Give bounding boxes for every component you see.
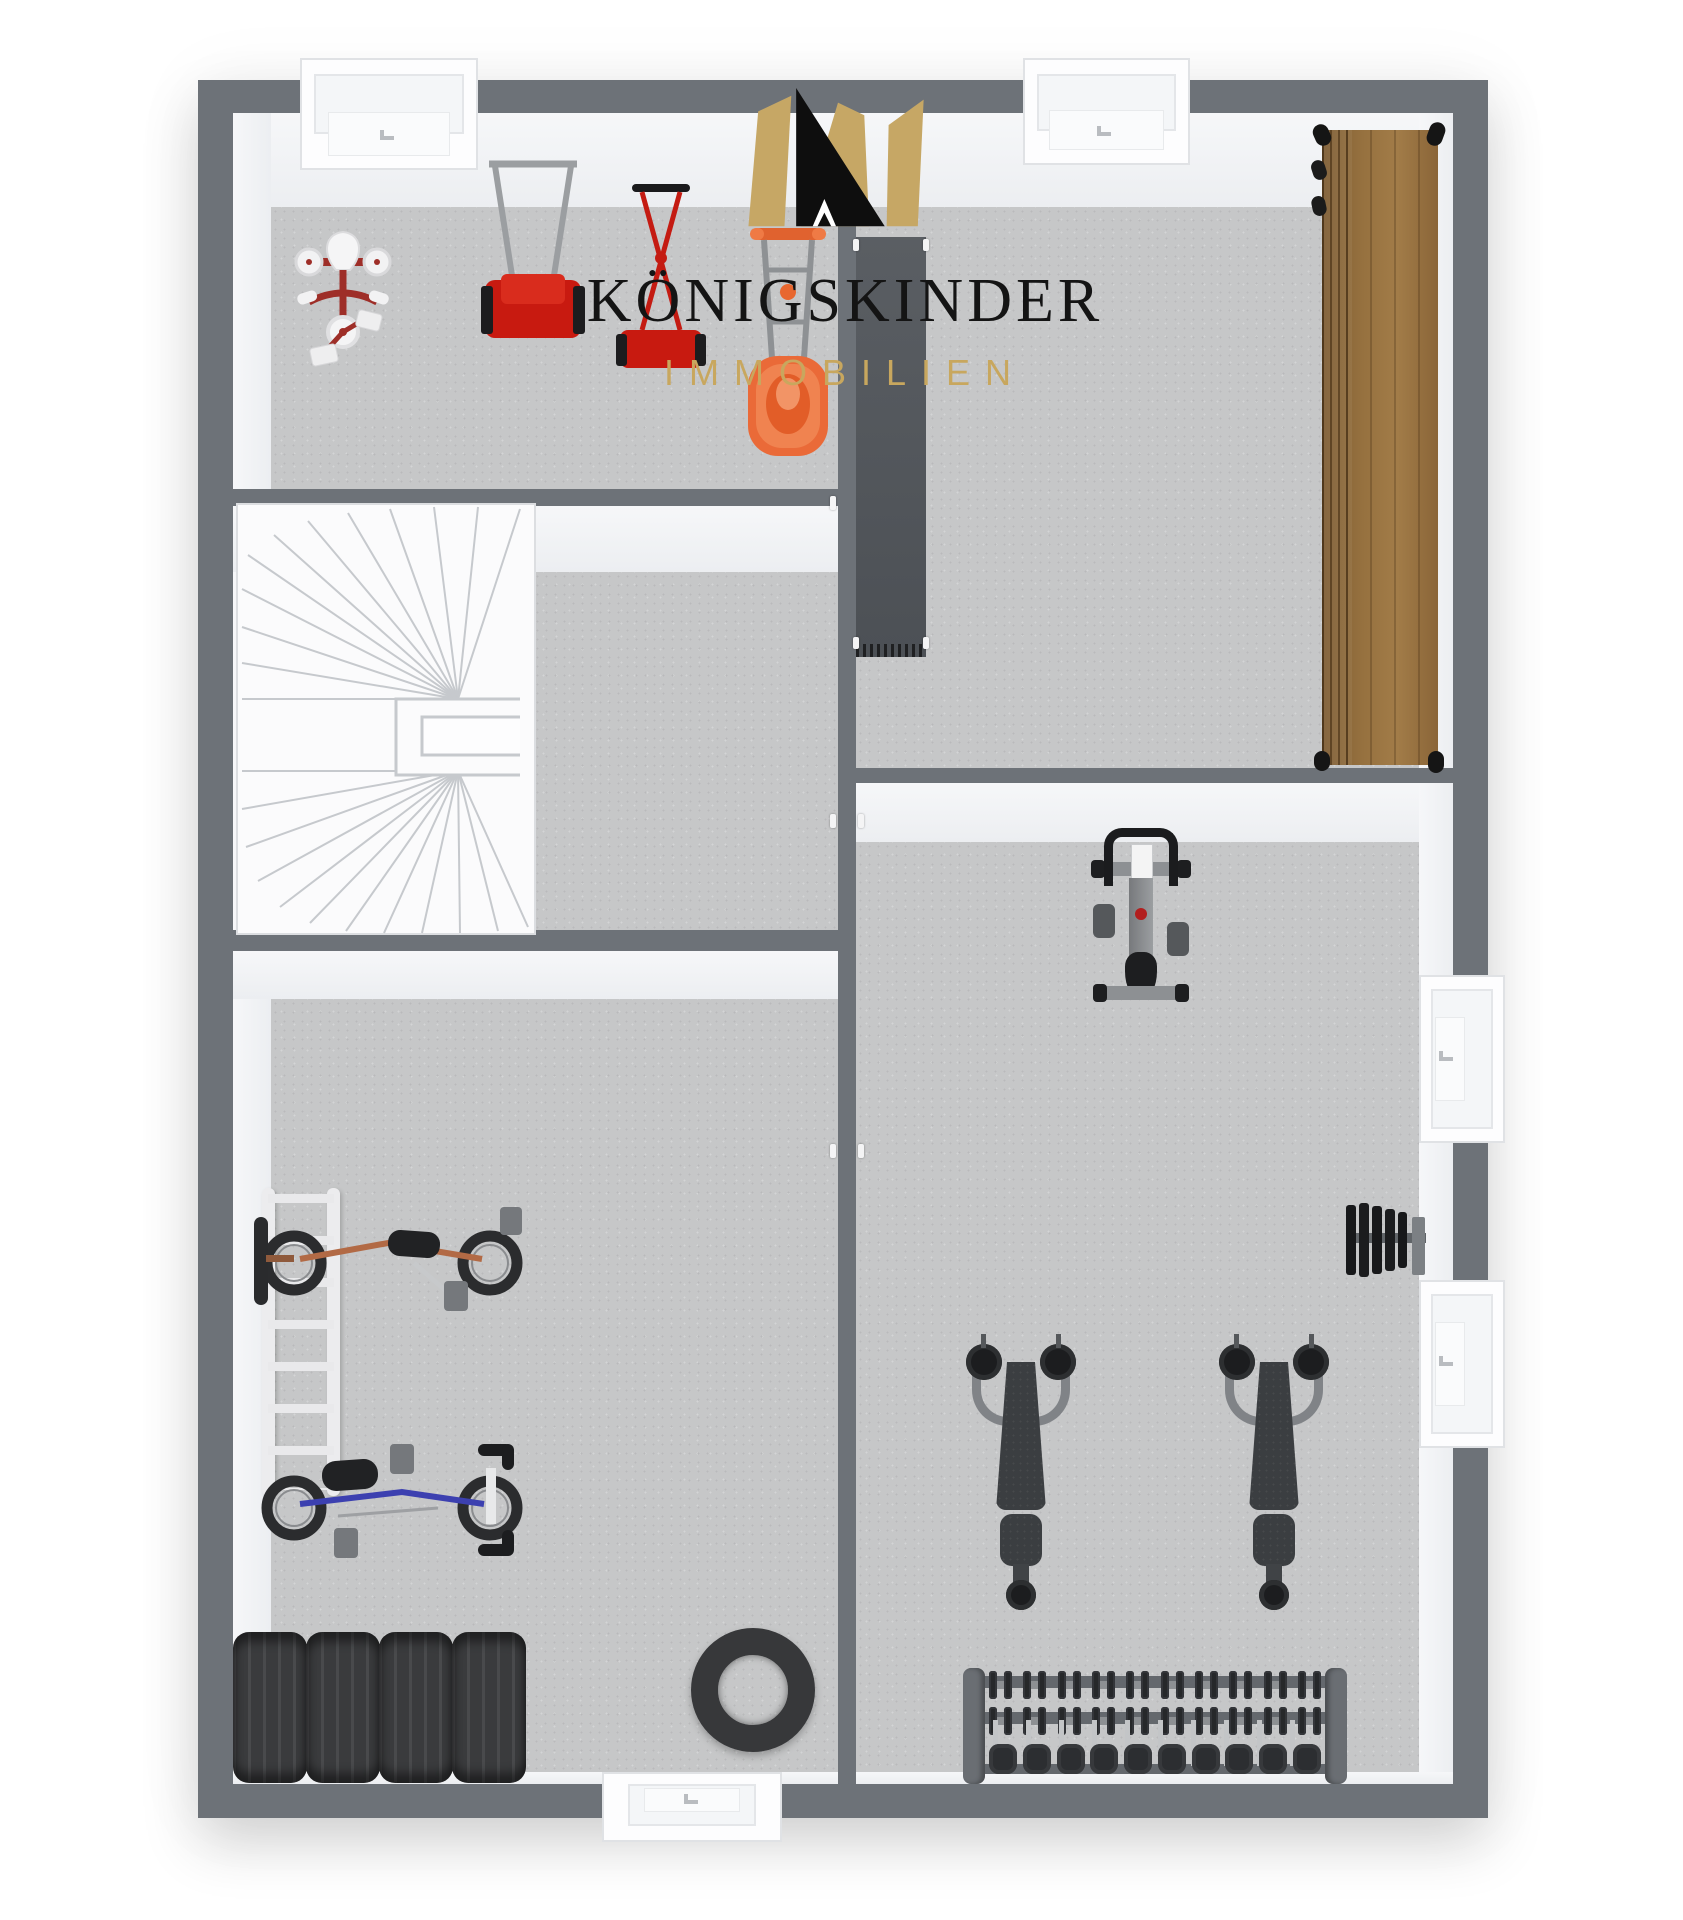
outer-wall-south (198, 1784, 1488, 1818)
window-top-right (1023, 58, 1190, 165)
stored-tire (306, 1632, 380, 1783)
weight-bracket (1412, 1217, 1425, 1275)
floor-stair-hall (533, 572, 838, 930)
center-dividing-wall (838, 200, 856, 1784)
copper-bike (238, 1205, 548, 1311)
wall-mounted-weight-plates (1346, 1203, 1438, 1277)
dumbbell-rack (963, 1668, 1347, 1784)
brand-division: IMMOBILIEN (545, 352, 1145, 394)
window-bottom (602, 1772, 782, 1842)
bench-weight-disc (1219, 1344, 1255, 1380)
stored-tire (379, 1632, 453, 1783)
wall-clip (830, 814, 836, 828)
spare-tire-flat (691, 1628, 815, 1752)
window-right-upper (1419, 975, 1505, 1143)
electric-mower-orange (740, 226, 836, 462)
tricycle (283, 220, 403, 378)
crown-logo-icon (738, 88, 938, 234)
bike-handlebar (254, 1217, 268, 1305)
bike-handlebar-stem (486, 1468, 496, 1524)
rack-side-frame (963, 1668, 985, 1784)
wall-wardrobe-gym (856, 768, 1453, 783)
spin-bike-pedal (1093, 904, 1115, 938)
wooden-wardrobe (1322, 130, 1438, 765)
rack-side-frame (1325, 1668, 1347, 1784)
bench-weight-disc (966, 1344, 1002, 1380)
outer-wall-east (1453, 80, 1488, 1818)
spin-bike (1093, 826, 1189, 1010)
brand-name: KÖNIGSKINDER (545, 266, 1145, 337)
wall-clip (830, 496, 836, 510)
wardrobe-louver-edge (1322, 130, 1352, 765)
bikeroom-north-face (233, 951, 838, 999)
incline-bench-right (1219, 1340, 1329, 1608)
bike-saddle (387, 1229, 441, 1259)
incline-bench-left (966, 1340, 1076, 1608)
wall-clip (858, 814, 864, 828)
blue-bike (238, 1442, 548, 1560)
bench-seat-pad (1253, 1514, 1295, 1566)
bench-seat-pad (1000, 1514, 1042, 1566)
floorplan-canvas: KÖNIGSKINDER IMMOBILIEN (0, 0, 1683, 1920)
window-top-left (300, 58, 478, 170)
spin-bike-pedal (1167, 922, 1189, 956)
stored-tire (233, 1632, 307, 1783)
bench-weight-disc (1040, 1344, 1076, 1380)
tricycle-seat (327, 232, 359, 270)
stored-tire (452, 1632, 526, 1783)
outer-wall-west (198, 80, 233, 1818)
window-right-lower (1419, 1280, 1505, 1448)
winder-staircase (236, 503, 536, 935)
wall-clip (858, 1144, 864, 1158)
bike-saddle (321, 1458, 379, 1492)
bench-weight-disc (1293, 1344, 1329, 1380)
wall-clip (830, 1144, 836, 1158)
